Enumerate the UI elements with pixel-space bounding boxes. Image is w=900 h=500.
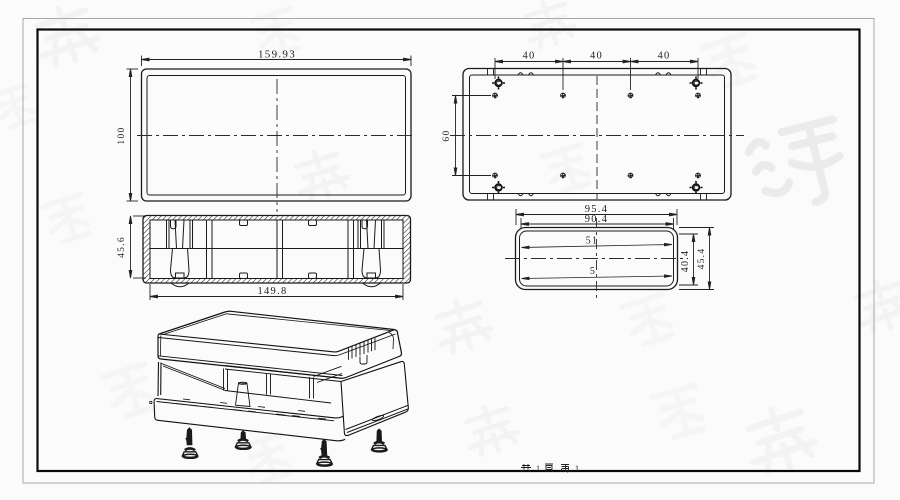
svg-text:40: 40 <box>522 51 535 62</box>
svg-text:45.4: 45.4 <box>697 248 707 270</box>
svg-text:100: 100 <box>117 126 127 144</box>
svg-text:1: 1 <box>536 464 541 473</box>
svg-text:159.93: 159.93 <box>258 49 296 61</box>
svg-text:45.6: 45.6 <box>117 236 127 258</box>
svg-text:5: 5 <box>590 266 596 277</box>
svg-text:51: 51 <box>586 236 599 247</box>
svg-text:40.4: 40.4 <box>680 250 691 273</box>
svg-text:40: 40 <box>657 51 670 62</box>
svg-text:149.8: 149.8 <box>257 286 287 297</box>
svg-text:90.4: 90.4 <box>585 214 609 225</box>
svg-text:40: 40 <box>590 51 603 62</box>
svg-text:1: 1 <box>575 464 580 473</box>
